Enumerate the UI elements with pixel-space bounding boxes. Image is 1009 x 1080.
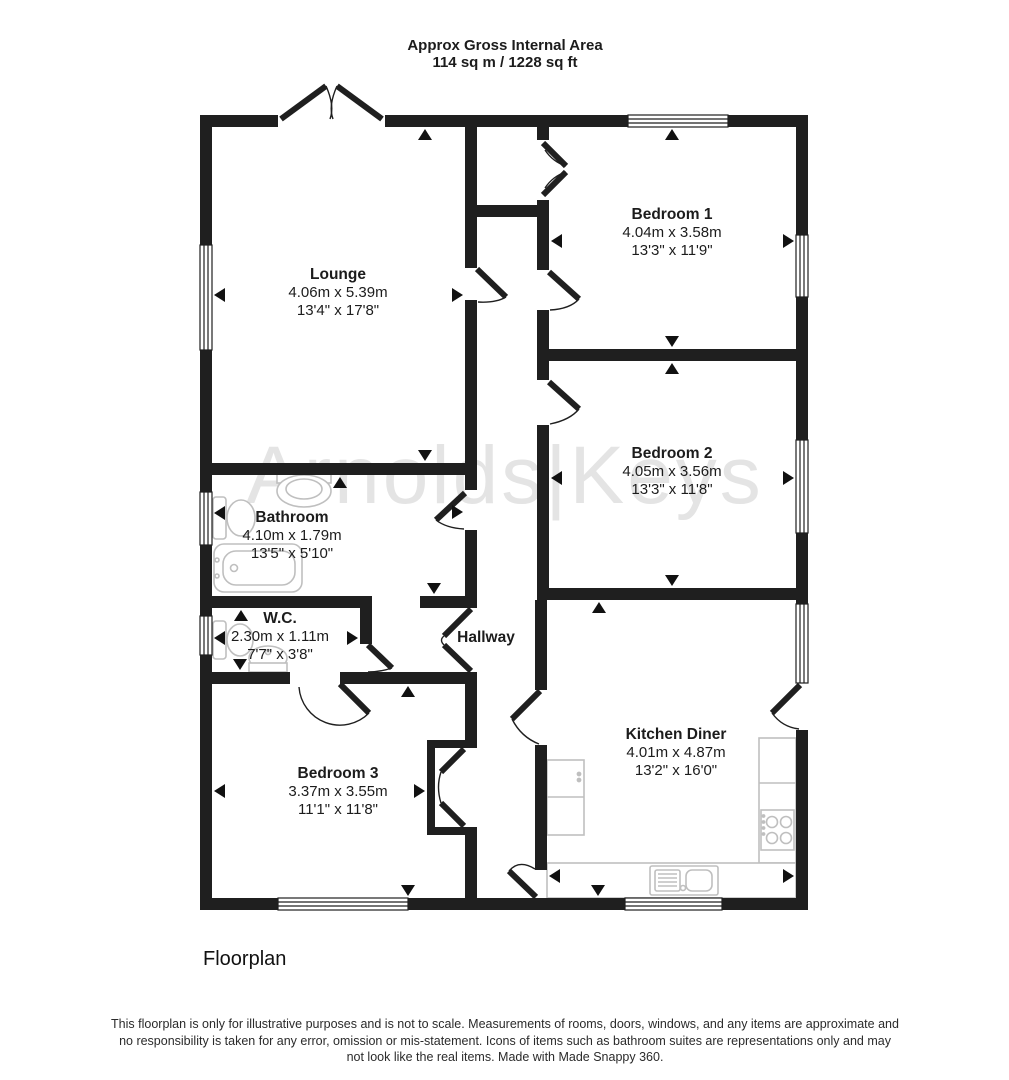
door-bathroom-arc [436, 520, 464, 529]
door-bedroom2-arc [550, 409, 579, 424]
window-kitchen-right [796, 604, 808, 683]
window-bedroom1-right [796, 235, 808, 297]
room-label-bedroom3: Bedroom 3 3.37m x 3.55m 11'1" x 11'8" [288, 765, 387, 819]
room-label-wc: W.C. 2.30m x 1.11m 7'7" x 3'8" [231, 610, 329, 664]
door-wc [368, 645, 392, 668]
kitchen-counter-left [547, 760, 584, 835]
cupboard-doors-arc [439, 772, 442, 803]
door-kitchen-bottom-arc [509, 864, 535, 871]
pedestal-sink-icon [277, 472, 331, 507]
door-lounge [477, 269, 506, 297]
french-doors-arcs [326, 86, 337, 119]
room-label-bedroom1: Bedroom 1 4.04m x 3.58m 13'3" x 11'9" [622, 206, 721, 260]
cupboard-doors [441, 749, 464, 826]
disclaimer-text: This floorplan is only for illustrative … [110, 1016, 900, 1066]
door-kitchen-right-arc [772, 713, 799, 729]
door-kitchen-bottom [509, 871, 536, 897]
door-kitchen-hall-arc [512, 719, 539, 744]
room-label-bedroom2: Bedroom 2 4.05m x 3.56m 13'3" x 11'8" [622, 445, 721, 499]
door-bedroom3 [340, 684, 369, 713]
room-label-lounge: Lounge 4.06m x 5.39m 13'4" x 17'8" [288, 266, 387, 320]
window-bedroom2-right [796, 440, 808, 533]
door-kitchen-hall [512, 691, 540, 719]
hall-lobby-doors-arc [442, 636, 445, 645]
room-label-kitchen-diner: Kitchen Diner 4.01m x 4.87m 13'2" x 16'0… [626, 726, 727, 780]
door-wc-arc [368, 668, 392, 672]
window-lounge-left [200, 245, 212, 350]
room-label-bathroom: Bathroom 4.10m x 1.79m 13'5" x 5'10" [242, 509, 341, 563]
kitchen-sink-icon [650, 866, 718, 895]
window-wc-left [200, 616, 212, 655]
floorplan-drawing: Arnolds|Keys [0, 0, 1009, 1080]
hob-icon [761, 810, 794, 850]
header-line2: 114 sq m / 1228 sq ft [407, 54, 602, 71]
door-bedroom1-arc [550, 299, 579, 310]
front-door [543, 143, 566, 195]
header-line1: Approx Gross Internal Area [407, 37, 602, 54]
door-kitchen-right [772, 685, 800, 713]
gross-internal-area-header: Approx Gross Internal Area 114 sq m / 12… [407, 37, 602, 71]
window-bedroom3-bottom [278, 898, 408, 910]
door-bedroom1 [549, 272, 579, 299]
door-bedroom2 [549, 382, 579, 409]
window-bedroom1-top [628, 115, 728, 127]
room-label-hallway: Hallway [457, 629, 515, 647]
floorplan-caption: Floorplan [203, 948, 286, 971]
window-kitchen-bottom [625, 898, 722, 910]
window-bathroom-left [200, 492, 212, 545]
door-lounge-arc [478, 297, 506, 302]
floorplan-page: Arnolds|Keys [0, 0, 1009, 1080]
